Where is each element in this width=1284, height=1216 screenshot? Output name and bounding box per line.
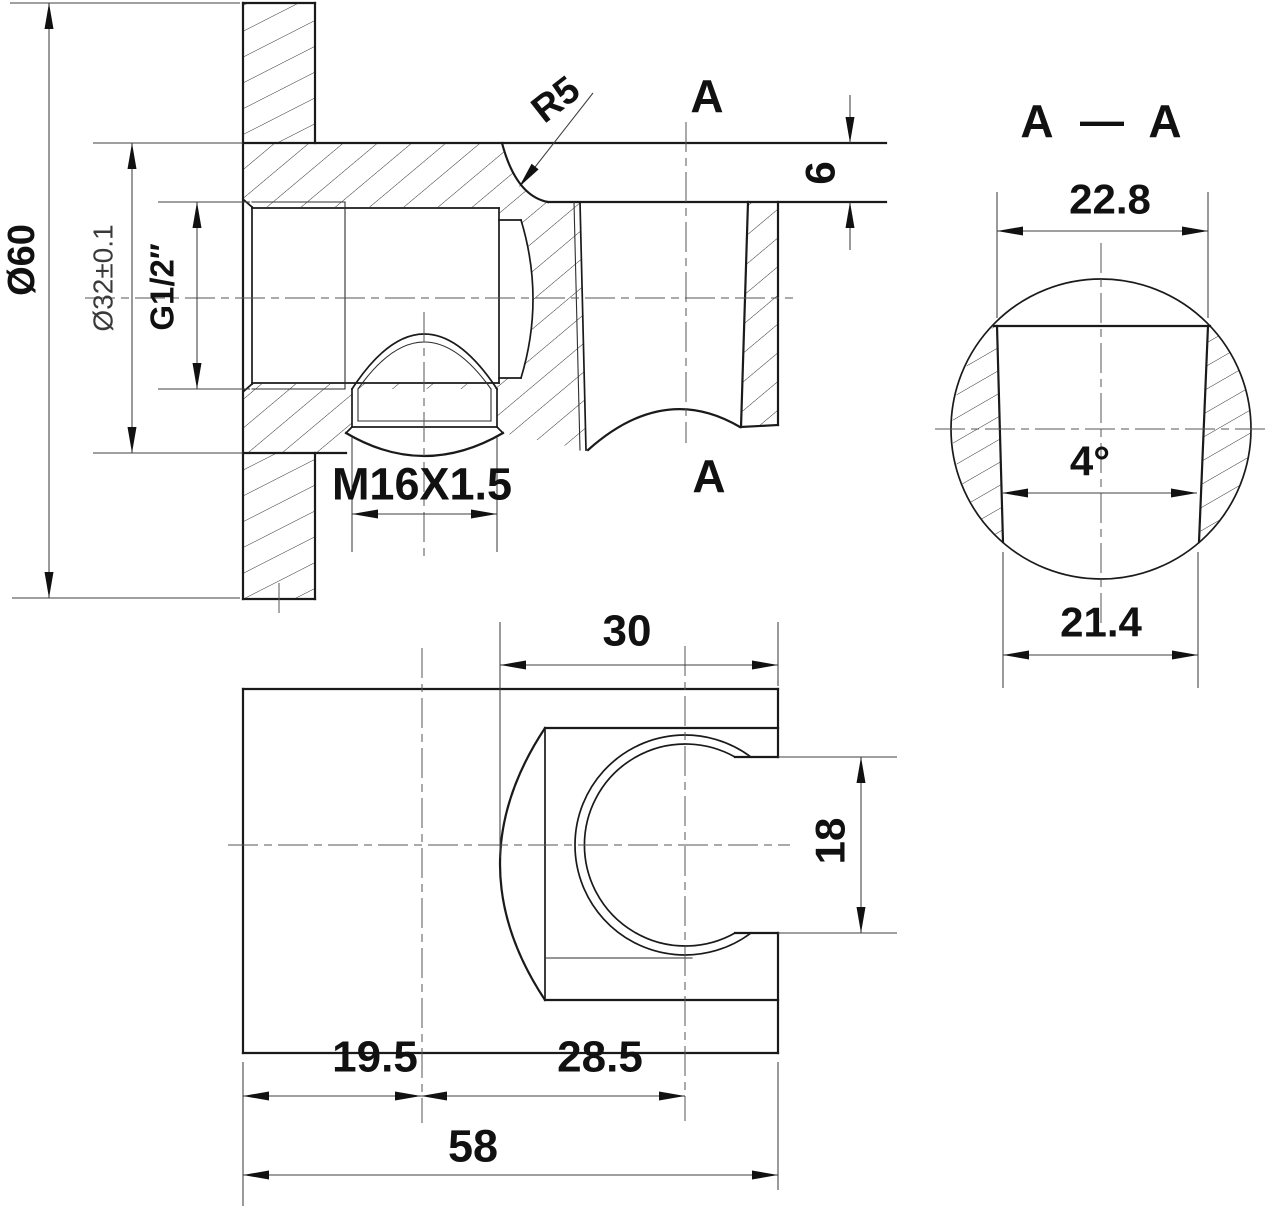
- wall-plate-hatch-bottom: [243, 453, 315, 599]
- inlet-bore: [244, 200, 533, 391]
- section-letter-bottom: A: [692, 450, 725, 502]
- section-aa-title: A — A: [1020, 95, 1181, 147]
- section-letter-top: A: [690, 70, 723, 122]
- dim-g12: G1/2″: [144, 202, 251, 389]
- dim-label-6: 6: [797, 161, 844, 184]
- wall-plate-hatch-top: [243, 3, 315, 143]
- dim-19-5-28-5: 19.5 28.5: [243, 1033, 685, 1207]
- dim-phi60: Ø60: [1, 3, 240, 598]
- dim-r5: R5: [519, 68, 593, 187]
- centerlines-side: [228, 646, 790, 1123]
- aa-wedge-hatch-left: [952, 326, 1003, 542]
- aa-title-letter-left: A: [1020, 95, 1053, 147]
- aa-title-dash: —: [1080, 97, 1124, 146]
- dim-label-30: 30: [603, 607, 652, 656]
- dim-22-8: 22.8: [997, 176, 1208, 319]
- dim-label-phi32: Ø32±0.1: [88, 224, 119, 331]
- dim-label-r5: R5: [524, 68, 588, 131]
- dim-58: 58: [243, 1062, 778, 1190]
- holder-cup: [500, 728, 778, 1000]
- dim-label-phi60: Ø60: [1, 224, 43, 296]
- dim-label-58: 58: [448, 1121, 498, 1172]
- cad-drawing-svg: Ø60 Ø32±0.1 G1/2″ M16X1.5: [0, 0, 1284, 1216]
- dim-label-g12: G1/2″: [144, 243, 181, 331]
- aa-title-letter-right: A: [1148, 95, 1181, 147]
- dim-18: 18: [778, 757, 897, 933]
- dim-wall6: 6: [797, 95, 855, 250]
- dim-label-18: 18: [807, 818, 854, 865]
- side-view: 30 18 19.5 28.5 58: [228, 607, 897, 1207]
- dim-m16: M16X1.5: [332, 437, 512, 552]
- side-view-outline: [243, 689, 778, 1053]
- dim-label-4deg: 4°: [1070, 438, 1110, 485]
- dim-label-28-5: 28.5: [557, 1033, 643, 1082]
- dim-4deg: 4°: [1002, 438, 1197, 498]
- drawing-sheet: Ø60 Ø32±0.1 G1/2″ M16X1.5: [0, 0, 1284, 1216]
- dim-label-21-4: 21.4: [1060, 599, 1142, 646]
- main-section-view: Ø60 Ø32±0.1 G1/2″ M16X1.5: [1, 3, 886, 613]
- dim-label-m16: M16X1.5: [332, 459, 512, 510]
- dim-label-19-5: 19.5: [332, 1033, 418, 1082]
- dim-label-22-8: 22.8: [1069, 176, 1151, 223]
- section-aa-view: A — A 22.8 4°: [935, 95, 1267, 688]
